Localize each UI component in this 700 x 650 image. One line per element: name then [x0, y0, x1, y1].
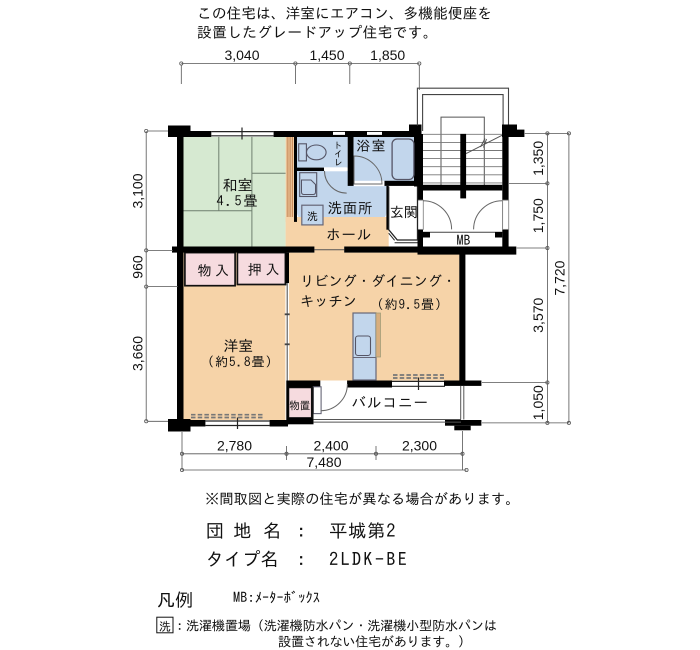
svg-text:2,780: 2,780 [217, 438, 252, 454]
svg-text:7,720: 7,720 [552, 260, 568, 295]
svg-text:1,750: 1,750 [530, 198, 546, 233]
svg-text:7,480: 7,480 [306, 454, 341, 470]
svg-text:2,400: 2,400 [313, 438, 348, 454]
svg-text:3,100: 3,100 [130, 173, 146, 208]
svg-text:3,570: 3,570 [530, 297, 546, 332]
svg-text:3,660: 3,660 [130, 336, 146, 371]
svg-text:1,050: 1,050 [530, 385, 546, 420]
svg-text:1,450: 1,450 [309, 47, 344, 63]
svg-text:1,850: 1,850 [370, 47, 405, 63]
svg-text:3,040: 3,040 [224, 47, 259, 63]
svg-text:960: 960 [130, 255, 146, 279]
svg-text:2,300: 2,300 [402, 438, 437, 454]
svg-text:1,350: 1,350 [530, 141, 546, 176]
